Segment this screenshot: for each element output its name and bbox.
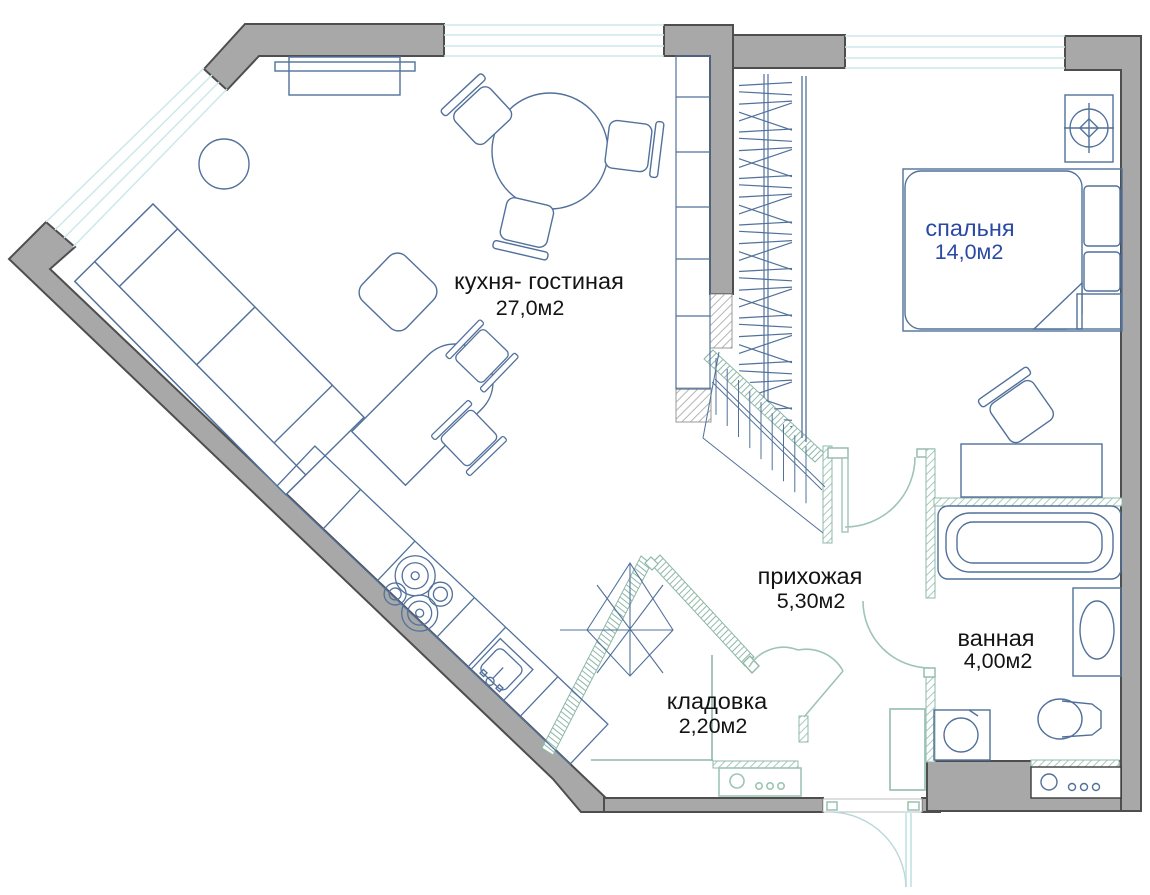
svg-text:прихожая: прихожая — [758, 563, 863, 589]
svg-text:ванная: ванная — [957, 625, 1034, 651]
svg-text:2,20м2: 2,20м2 — [679, 714, 748, 738]
svg-text:14,0м2: 14,0м2 — [935, 240, 1004, 264]
svg-text:кухня- гостиная: кухня- гостиная — [454, 268, 624, 294]
svg-text:кладовка: кладовка — [667, 688, 768, 714]
svg-text:5,30м2: 5,30м2 — [777, 589, 846, 613]
svg-text:4,00м2: 4,00м2 — [964, 649, 1033, 673]
svg-text:27,0м2: 27,0м2 — [496, 296, 565, 320]
svg-text:спальня: спальня — [925, 215, 1014, 241]
